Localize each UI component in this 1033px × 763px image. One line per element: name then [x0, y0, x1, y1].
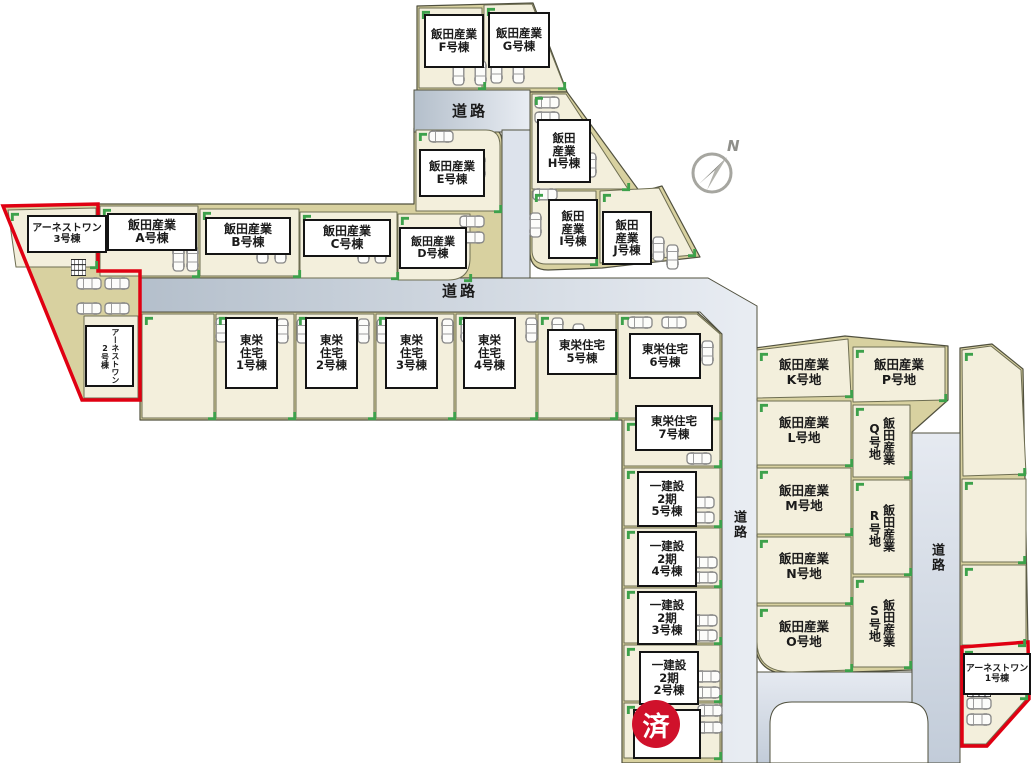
house-hajime-2[interactable]: 一建設 2期 2号棟	[639, 651, 699, 705]
road-label-top: 道路	[436, 100, 504, 121]
car-icon	[687, 452, 711, 465]
compass-n-label: N	[727, 137, 740, 155]
parcel-iida-l-label[interactable]: 飯田産業 L号地	[757, 408, 851, 454]
car-icon	[628, 316, 652, 329]
house-toei-2[interactable]: 東栄 住宅 2号棟	[305, 317, 358, 389]
road-label-middle: 道路	[426, 280, 494, 301]
house-hajime-3-label: 一建設 2期 3号棟	[650, 599, 685, 638]
house-arnest-2-label: アーネストワン 2号棟	[99, 328, 120, 384]
house-hajime-5[interactable]: 一建設 2期 5号棟	[637, 471, 697, 527]
house-iida-h[interactable]: 飯田 産業 H号棟	[537, 119, 591, 183]
house-toei-2-label: 東栄 住宅 2号棟	[316, 334, 347, 373]
lot-far-right-3[interactable]	[962, 565, 1026, 645]
house-iida-f-label: 飯田産業 F号棟	[431, 28, 477, 54]
house-arnest-1-label: アーネストワン 1号棟	[966, 664, 1028, 684]
house-toei-5[interactable]: 東栄住宅 5号棟	[547, 329, 617, 375]
house-iida-f[interactable]: 飯田産業 F号棟	[424, 14, 484, 68]
lot-far-right-2[interactable]	[962, 479, 1026, 562]
house-arnest-3[interactable]: アーネストワン 3号棟	[27, 215, 107, 253]
car-icon	[77, 302, 101, 315]
parcel-iida-o-label[interactable]: 飯田産業 O号地	[757, 612, 851, 658]
house-hajime-4[interactable]: 一建設 2期 4号棟	[637, 531, 697, 587]
house-toei-1[interactable]: 東栄 住宅 1号棟	[225, 317, 278, 389]
road-connector	[502, 130, 530, 278]
house-iida-a-label: 飯田産業 A号棟	[128, 219, 176, 246]
house-iida-d[interactable]: 飯田産業 D号棟	[399, 227, 467, 269]
car-icon	[105, 277, 129, 290]
house-toei-4[interactable]: 東栄 住宅 4号棟	[463, 317, 516, 389]
house-arnest-2[interactable]: アーネストワン 2号棟	[85, 325, 134, 387]
car-icon	[701, 341, 714, 365]
car-icon	[276, 319, 289, 343]
house-toei-5-label: 東栄住宅 5号棟	[559, 339, 605, 365]
parcel-iida-k-label[interactable]: 飯田産業 K号地	[757, 350, 851, 396]
house-hajime-2-label: 一建設 2期 2号棟	[652, 659, 687, 698]
house-iida-e-label: 飯田産業 E号棟	[429, 160, 475, 186]
house-iida-g[interactable]: 飯田産業 G号棟	[488, 12, 550, 68]
car-icon	[77, 277, 101, 290]
road-label-mid-vertical: 道路	[729, 496, 748, 554]
parcel-iida-r-label[interactable]: 飯田産業 R号地	[853, 484, 910, 572]
car-icon	[662, 316, 686, 329]
house-iida-e[interactable]: 飯田産業 E号棟	[419, 149, 485, 197]
house-hajime-5-label: 一建設 2期 5号棟	[650, 480, 685, 519]
house-hajime-3[interactable]: 一建設 2期 3号棟	[637, 591, 697, 645]
house-toei-3-label: 東栄 住宅 3号棟	[396, 334, 427, 373]
compass-icon	[693, 154, 731, 192]
lot-empty[interactable]	[142, 314, 214, 418]
house-iida-h-label: 飯田 産業 H号棟	[548, 132, 581, 171]
parcel-iida-n-label[interactable]: 飯田産業 N号地	[757, 544, 851, 590]
house-toei-1-label: 東栄 住宅 1号棟	[236, 334, 267, 373]
house-toei-6[interactable]: 東栄住宅 6号棟	[629, 333, 701, 379]
site-plan-map: 飯田産業 F号棟 飯田産業 G号棟 飯田産業 E号棟 飯田 産業 H号棟 飯田 …	[0, 0, 1033, 763]
parcel-iida-q-label[interactable]: 飯田産業 Q号地	[853, 406, 910, 476]
house-iida-i[interactable]: 飯田 産業 I号棟	[548, 199, 598, 259]
car-icon	[529, 213, 542, 237]
car-icon	[429, 130, 453, 143]
house-iida-b-label: 飯田産業 B号棟	[224, 223, 272, 250]
house-toei-6-label: 東栄住宅 6号棟	[642, 343, 688, 369]
house-arnest-3-label: アーネストワン 3号棟	[32, 223, 101, 245]
house-iida-c-label: 飯田産業 C号棟	[323, 225, 371, 252]
road-bottom-notch	[770, 702, 928, 763]
house-iida-j-label: 飯田 産業 J号棟	[613, 219, 640, 258]
car-icon	[698, 721, 722, 734]
house-toei-3[interactable]: 東栄 住宅 3号棟	[385, 317, 438, 389]
parcel-iida-s-label[interactable]: 飯田産業 S号地	[853, 580, 910, 666]
house-toei-4-label: 東栄 住宅 4号棟	[474, 334, 505, 373]
parcel-iida-m-label[interactable]: 飯田産業 M号地	[757, 476, 851, 522]
house-iida-g-label: 飯田産業 G号棟	[496, 27, 542, 53]
house-toei-7[interactable]: 東栄住宅 7号棟	[635, 405, 713, 451]
car-icon	[357, 319, 370, 343]
house-iida-a[interactable]: 飯田産業 A号棟	[107, 213, 197, 251]
house-toei-7-label: 東栄住宅 7号棟	[651, 415, 697, 441]
car-icon	[967, 713, 991, 726]
house-iida-c[interactable]: 飯田産業 C号棟	[303, 219, 391, 257]
car-icon	[460, 215, 484, 228]
parcel-iida-p-label[interactable]: 飯田産業 P号地	[853, 350, 945, 396]
road-label-right-vertical: 道路	[927, 529, 946, 587]
house-arnest-1[interactable]: アーネストワン 1号棟	[963, 653, 1031, 695]
car-icon	[696, 686, 720, 699]
hatch-grid-icon	[71, 259, 86, 276]
car-icon	[967, 697, 991, 710]
car-icon	[698, 704, 722, 717]
sold-badge: 済	[632, 700, 680, 748]
house-iida-b[interactable]: 飯田産業 B号棟	[205, 217, 291, 255]
car-icon	[666, 245, 679, 269]
house-iida-i-label: 飯田 産業 I号棟	[559, 210, 586, 249]
car-icon	[696, 670, 720, 683]
car-icon	[652, 237, 665, 261]
house-iida-j[interactable]: 飯田 産業 J号棟	[602, 211, 652, 265]
car-icon	[441, 319, 454, 343]
car-icon	[105, 302, 129, 315]
car-icon	[525, 318, 538, 342]
house-hajime-4-label: 一建設 2期 4号棟	[650, 540, 685, 579]
house-iida-d-label: 飯田産業 D号棟	[411, 236, 455, 261]
